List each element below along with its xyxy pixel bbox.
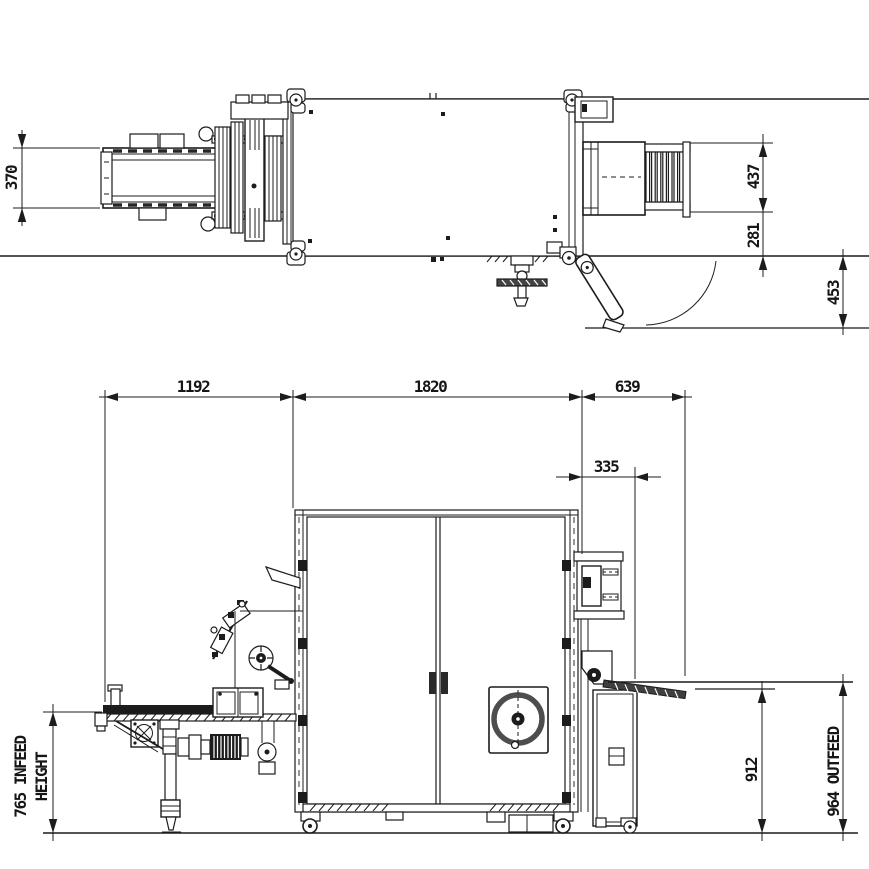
swing-door-plan <box>574 253 716 332</box>
cabinet-elevation <box>266 510 578 833</box>
dim-label-1192: 1192 <box>177 377 210 396</box>
dim-label-370: 370 <box>2 165 21 190</box>
control-dial <box>489 687 548 753</box>
infeed-top-box-1 <box>130 134 158 148</box>
caster-left <box>301 812 320 833</box>
foot-right <box>487 812 505 822</box>
dim-label-281: 281 <box>744 223 763 248</box>
hand-knob-top <box>199 127 213 141</box>
dim-label-912: 912 <box>742 757 761 782</box>
machine-body-plan <box>293 93 583 262</box>
lower-roller <box>258 721 276 774</box>
outfeed-rollers-plan <box>646 152 683 202</box>
outfeed-stand <box>593 690 637 833</box>
infeed-conveyor-plan <box>101 127 218 231</box>
adjustable-leg <box>161 754 181 832</box>
carriage-top-bar <box>231 102 288 119</box>
outfeed-housing-plan <box>583 142 645 215</box>
infeed-bottom-box <box>139 208 166 220</box>
dim-label-964-outfeed: 964 OUTFEED <box>824 726 843 816</box>
outfeed-control-box <box>574 552 624 619</box>
base-box <box>509 815 553 832</box>
infeed-top-box-2 <box>160 134 184 148</box>
dim-label-453: 453 <box>824 280 843 305</box>
elevation-view: 1192 1820 639 335 765 INFEED HEIGHT 912 … <box>11 377 858 841</box>
dim-label-639: 639 <box>615 377 640 396</box>
film-former <box>211 600 250 659</box>
door-end-hook <box>603 319 624 332</box>
dim-label-335: 335 <box>594 457 619 476</box>
belt-end-box <box>213 688 263 717</box>
machine-layout-drawing: 370 437 281 453 <box>0 0 869 869</box>
caster-right <box>554 812 573 833</box>
drive-motor <box>178 734 248 760</box>
plan-view: 370 437 281 453 <box>0 89 869 335</box>
foot-left <box>386 812 403 820</box>
dim-label-437: 437 <box>744 164 763 189</box>
outfeed-elevation <box>574 552 853 833</box>
flap-bracket <box>582 651 612 684</box>
dim-label-height: HEIGHT <box>32 752 51 802</box>
drawing-canvas: 370 437 281 453 <box>0 0 869 869</box>
infeed-post <box>111 689 120 706</box>
caster-plan-bottom-left <box>287 241 305 265</box>
base-rail <box>303 804 570 812</box>
dim-label-1820: 1820 <box>414 377 447 396</box>
tension-wheel <box>249 646 294 684</box>
infeed-elevation <box>95 600 303 832</box>
dim-label-765-infeed: 765 INFEED <box>11 735 30 817</box>
film-roll-holder-plan <box>497 256 547 306</box>
film-carriage-plan <box>212 95 304 244</box>
outfeed-conveyor-plan <box>575 97 690 217</box>
infeed-belt <box>103 705 213 714</box>
door-swing-arc <box>646 261 716 325</box>
